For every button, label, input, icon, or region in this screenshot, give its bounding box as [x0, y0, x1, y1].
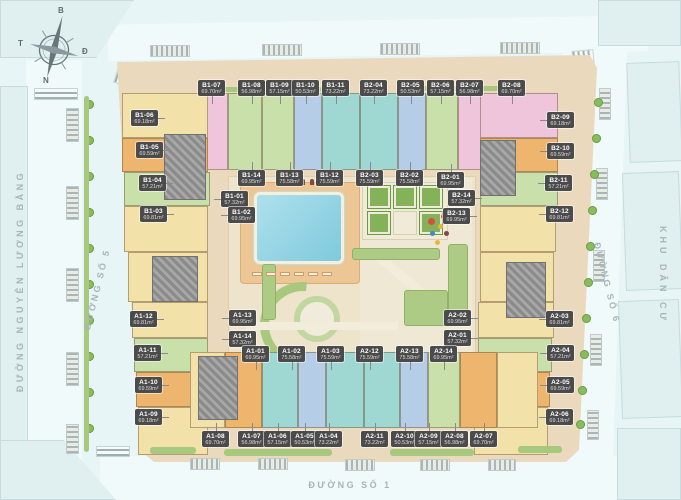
neighbor-parcel — [598, 0, 681, 46]
unit-label-a1-10[interactable]: A1-1069.59m² — [135, 377, 162, 393]
unit-id: B1-07 — [198, 82, 225, 89]
unit-label-b2-09[interactable]: B2-0969.18m² — [547, 112, 574, 128]
sidewalk-hatch — [66, 108, 79, 142]
unit-id: A2-09 — [415, 433, 442, 440]
hedge-strip — [390, 449, 474, 456]
unit-area: 69.18m² — [546, 418, 573, 424]
unit-area: 57.21m² — [134, 354, 161, 360]
sidewalk-hatch — [420, 459, 450, 471]
unit-area: 69.59m² — [547, 152, 574, 158]
unit-label-b2-10[interactable]: B2-1069.59m² — [547, 143, 574, 159]
bush — [592, 134, 601, 143]
unit-area: 73.22m² — [361, 440, 388, 446]
unit-id: B1-06 — [131, 112, 158, 119]
unit-id: A2-08 — [441, 433, 468, 440]
unit-id: B2-03 — [356, 172, 383, 179]
unit-label-b2-12[interactable]: B2-1269.81m² — [546, 206, 573, 222]
unit-label-a2-02[interactable]: A2-0269.95m² — [444, 310, 471, 326]
unit-id: B2-12 — [546, 208, 573, 215]
neighbor-parcel — [618, 299, 681, 419]
pool-lounger — [308, 272, 318, 276]
unit-id: A1-10 — [135, 379, 162, 386]
unit-area: 75.59m² — [316, 179, 343, 185]
unit-label-a2-12[interactable]: A2-1275.59m² — [356, 346, 383, 362]
unit-id: A2-01 — [444, 332, 471, 339]
unit-id: A1-09 — [135, 411, 162, 418]
unit-area: 75.59m² — [356, 355, 383, 361]
unit-label-b1-14[interactable]: B1-1469.95m² — [238, 170, 265, 186]
person-figure — [310, 179, 314, 185]
unit-area: 69.95m² — [228, 216, 255, 222]
unit-area: 57.21m² — [545, 184, 572, 190]
unit-area: 69.95m² — [242, 355, 269, 361]
unit-label-a2-04[interactable]: A2-0457.21m² — [547, 345, 574, 361]
sidewalk-hatch — [380, 43, 420, 55]
unit-id: B1-03 — [140, 208, 167, 215]
unit-label-b1-10[interactable]: B1-1050.53m² — [292, 80, 319, 96]
unit-id: A2-07 — [470, 433, 497, 440]
unit-area: 69.70m² — [202, 440, 229, 446]
compass-rose: B Đ N T — [12, 6, 96, 90]
sidewalk-hatch — [66, 268, 79, 302]
unit-label-a2-06[interactable]: A2-0669.18m² — [546, 409, 573, 425]
unit-id: B1-11 — [322, 82, 349, 89]
unit-id: A2-11 — [361, 433, 388, 440]
unit-id: B1-14 — [238, 172, 265, 179]
unit-label-a2-05[interactable]: A2-0569.59m² — [547, 377, 574, 393]
unit-label-a1-12[interactable]: A1-1269.81m² — [130, 311, 157, 327]
street-label-nguyen-luong-bang: ĐƯỜNG NGUYỄN LƯƠNG BẰNG — [15, 131, 25, 431]
unit-label-a2-13[interactable]: A2-1375.58m² — [396, 346, 423, 362]
sidewalk-hatch — [150, 45, 190, 57]
unit-area: 69.81m² — [546, 320, 573, 326]
unit-id: B2-08 — [498, 82, 525, 89]
sidewalk-hatch — [66, 186, 79, 220]
unit-area: 69.59m² — [135, 386, 162, 392]
unit-area: 69.70m² — [470, 440, 497, 446]
unit-id: A1-11 — [134, 347, 161, 354]
unit-id: A2-12 — [356, 348, 383, 355]
unit-block — [262, 93, 294, 170]
unit-label-b2-02[interactable]: B2-0275.58m² — [396, 170, 423, 186]
unit-area: 56.98m² — [238, 440, 265, 446]
unit-id: A2-06 — [546, 411, 573, 418]
hedge-strip — [150, 447, 196, 454]
unit-label-a2-14[interactable]: A2-1469.95m² — [430, 346, 457, 362]
unit-area: 56.98m² — [238, 89, 265, 95]
unit-label-b1-02[interactable]: B1-0269.95m² — [228, 207, 255, 223]
unit-label-a1-08[interactable]: A1-0869.70m² — [202, 431, 229, 447]
hedge-strip — [224, 449, 332, 456]
unit-label-b2-04[interactable]: B2-0473.22m² — [360, 80, 387, 96]
unit-label-b1-07[interactable]: B1-0769.70m² — [198, 80, 225, 96]
unit-id: A1-05 — [291, 433, 318, 440]
unit-block — [294, 93, 322, 170]
unit-id: B2-10 — [547, 145, 574, 152]
unit-label-b1-08[interactable]: B1-0856.98m² — [238, 80, 265, 96]
unit-area: 69.18m² — [135, 418, 162, 424]
unit-id: B1-12 — [316, 172, 343, 179]
unit-area: 57.15m² — [427, 89, 454, 95]
unit-label-b1-11[interactable]: B1-1173.22m² — [322, 80, 349, 96]
sidewalk-hatch — [587, 410, 599, 440]
plaza-planter — [368, 186, 390, 208]
unit-block — [322, 93, 360, 170]
unit-id: A2-13 — [396, 348, 423, 355]
unit-id: B2-07 — [456, 82, 483, 89]
unit-block — [228, 93, 262, 170]
unit-id: B1-04 — [139, 177, 166, 184]
unit-label-b1-04[interactable]: B1-0457.21m² — [139, 175, 166, 191]
unit-area: 73.22m² — [315, 440, 342, 446]
playground-item — [430, 231, 435, 236]
unit-label-a2-03[interactable]: A2-0369.81m² — [546, 311, 573, 327]
unit-label-a1-13[interactable]: A1-1369.95m² — [229, 310, 256, 326]
unit-label-b2-06[interactable]: B2-0657.15m² — [427, 80, 454, 96]
plaza-planter — [420, 186, 442, 208]
unit-block — [497, 352, 538, 428]
sidewalk-hatch — [500, 42, 540, 54]
unit-id: A1-01 — [242, 348, 269, 355]
service-core-block — [164, 134, 206, 200]
unit-label-b1-01[interactable]: B1-0157.32m² — [221, 191, 248, 207]
district-label-khu-dan-cu: KHU DÂN CƯ — [658, 220, 668, 330]
unit-area: 57.32m² — [444, 339, 471, 345]
unit-area: 69.95m² — [430, 355, 457, 361]
unit-area: 75.59m² — [317, 355, 344, 361]
unit-id: B1-09 — [266, 82, 293, 89]
hedge-strip — [518, 446, 562, 453]
unit-area: 69.81m² — [546, 215, 573, 221]
unit-area: 50.53m² — [397, 89, 424, 95]
unit-label-b1-03[interactable]: B1-0369.81m² — [140, 206, 167, 222]
neighbor-parcel — [626, 61, 681, 163]
unit-label-a1-06[interactable]: A1-0657.15m² — [264, 431, 291, 447]
unit-area: 73.22m² — [360, 89, 387, 95]
unit-id: B2-05 — [397, 82, 424, 89]
lawn-patch — [352, 248, 440, 260]
unit-id: A2-02 — [444, 312, 471, 319]
unit-block — [480, 206, 556, 252]
unit-label-b1-09[interactable]: B1-0957.15m² — [266, 80, 293, 96]
unit-id: B2-04 — [360, 82, 387, 89]
sidewalk-hatch — [262, 44, 302, 56]
unit-area: 73.22m² — [322, 89, 349, 95]
unit-area: 75.59m² — [356, 179, 383, 185]
unit-id: B2-09 — [547, 114, 574, 121]
bush — [582, 314, 591, 323]
unit-area: 57.21m² — [139, 184, 166, 190]
unit-label-b2-07[interactable]: B2-0756.98m² — [456, 80, 483, 96]
unit-label-b1-13[interactable]: B1-1375.58m² — [276, 170, 303, 186]
pool-lounger — [252, 272, 262, 276]
unit-area: 75.58m² — [396, 355, 423, 361]
unit-area: 57.32m² — [448, 199, 475, 205]
unit-block — [426, 93, 458, 170]
plaza-planter — [368, 212, 390, 234]
unit-label-a1-01[interactable]: A1-0169.95m² — [242, 346, 269, 362]
bush — [584, 278, 593, 287]
unit-id: B1-05 — [136, 144, 163, 151]
unit-label-a1-07[interactable]: A1-0756.98m² — [238, 431, 265, 447]
unit-label-a2-01[interactable]: A2-0157.32m² — [444, 330, 471, 346]
unit-area: 69.18m² — [131, 119, 158, 125]
bush — [576, 420, 585, 429]
unit-label-b2-11[interactable]: B2-1157.21m² — [545, 175, 572, 191]
unit-block — [398, 93, 426, 170]
unit-id: A1-07 — [238, 433, 265, 440]
unit-label-b1-12[interactable]: B1-1275.59m² — [316, 170, 343, 186]
unit-id: A2-03 — [546, 313, 573, 320]
unit-label-a1-14[interactable]: A1-1457.32m² — [229, 331, 256, 347]
compass-east-label: Đ — [82, 47, 88, 56]
sidewalk-hatch — [488, 459, 516, 471]
unit-id: B1-08 — [238, 82, 265, 89]
unit-label-a1-02[interactable]: A1-0275.58m² — [278, 346, 305, 362]
unit-block — [298, 352, 326, 428]
playground-item — [428, 218, 435, 225]
compass-north-label: B — [58, 6, 64, 15]
unit-block — [262, 352, 298, 428]
pool-lounger — [266, 272, 276, 276]
compass-south-label: N — [43, 76, 49, 85]
hedge-strip — [84, 96, 89, 452]
unit-area: 69.59m² — [136, 151, 163, 157]
master-plan-canvas: B1-0769.70m²B1-0856.98m²B1-0957.15m²B1-1… — [0, 0, 681, 500]
unit-id: A1-14 — [229, 333, 256, 340]
unit-id: B2-06 — [427, 82, 454, 89]
unit-label-a1-03[interactable]: A1-0375.59m² — [317, 346, 344, 362]
unit-id: A2-14 — [430, 348, 457, 355]
lawn-patch — [404, 290, 448, 326]
unit-area: 57.15m² — [415, 440, 442, 446]
unit-area: 69.81m² — [130, 320, 157, 326]
street-label-duong-so-1: ĐƯỜNG SỐ 1 — [270, 480, 430, 490]
sidewalk-hatch — [66, 424, 79, 454]
unit-block — [400, 352, 428, 428]
unit-id: B2-11 — [545, 177, 572, 184]
unit-label-a2-10[interactable]: A2-1050.53m² — [391, 431, 418, 447]
unit-label-a1-05[interactable]: A1-0550.53m² — [291, 431, 318, 447]
unit-block — [326, 352, 364, 428]
unit-label-b2-08[interactable]: B2-0869.70m² — [498, 80, 525, 96]
unit-id: A2-10 — [391, 433, 418, 440]
unit-id: B1-01 — [221, 193, 248, 200]
swimming-pool — [254, 192, 344, 264]
bush — [594, 98, 603, 107]
sidewalk-hatch — [258, 458, 288, 470]
plaza-paved-square — [394, 212, 416, 234]
garden-fountain-circle — [294, 296, 340, 342]
unit-id: A1-08 — [202, 433, 229, 440]
unit-area: 69.95m² — [238, 179, 265, 185]
sidewalk-hatch — [190, 458, 220, 470]
unit-label-a2-11[interactable]: A2-1173.22m² — [361, 431, 388, 447]
unit-label-b2-01[interactable]: B2-0169.95m² — [437, 172, 464, 188]
service-core-block — [506, 262, 546, 318]
unit-id: A1-13 — [229, 312, 256, 319]
unit-label-b2-05[interactable]: B2-0550.53m² — [397, 80, 424, 96]
unit-label-b1-05[interactable]: B1-0569.59m² — [136, 142, 163, 158]
unit-label-a2-07[interactable]: A2-0769.70m² — [470, 431, 497, 447]
sidewalk-hatch — [590, 334, 602, 366]
unit-label-b1-06[interactable]: B1-0669.18m² — [131, 110, 158, 126]
unit-area: 57.21m² — [547, 354, 574, 360]
plaza-planter — [394, 186, 416, 208]
unit-id: A2-04 — [547, 347, 574, 354]
service-core-block — [198, 356, 238, 420]
unit-id: A1-12 — [130, 313, 157, 320]
unit-area: 69.18m² — [547, 121, 574, 127]
unit-block — [460, 352, 497, 428]
service-core-block — [480, 140, 516, 196]
unit-id: B1-02 — [228, 209, 255, 216]
unit-area: 50.53m² — [391, 440, 418, 446]
sidewalk-hatch — [345, 459, 375, 471]
unit-label-a2-08[interactable]: A2-0856.98m² — [441, 431, 468, 447]
unit-area: 69.95m² — [444, 319, 471, 325]
unit-id: A1-04 — [315, 433, 342, 440]
pool-lounger — [280, 272, 290, 276]
bush — [580, 350, 589, 359]
neighbor-parcel — [622, 171, 681, 291]
unit-block — [360, 93, 398, 170]
unit-id: A1-02 — [278, 348, 305, 355]
unit-area: 75.58m² — [278, 355, 305, 361]
sidewalk-hatch — [66, 352, 79, 386]
playground-item — [444, 231, 449, 236]
unit-label-a2-09[interactable]: A2-0957.15m² — [415, 431, 442, 447]
bush — [590, 170, 599, 179]
unit-id: B2-02 — [396, 172, 423, 179]
unit-id: B1-13 — [276, 172, 303, 179]
unit-id: A1-03 — [317, 348, 344, 355]
unit-id: B2-14 — [448, 192, 475, 199]
crosswalk — [96, 446, 130, 457]
unit-area: 69.95m² — [437, 181, 464, 187]
pool-lounger — [294, 272, 304, 276]
playground-item — [435, 240, 440, 245]
unit-area: 69.70m² — [198, 89, 225, 95]
unit-area: 69.95m² — [443, 217, 470, 223]
unit-area: 57.15m² — [264, 440, 291, 446]
unit-id: B2-13 — [443, 210, 470, 217]
unit-area: 56.98m² — [441, 440, 468, 446]
unit-area: 56.98m² — [456, 89, 483, 95]
unit-area: 69.70m² — [498, 89, 525, 95]
unit-area: 69.59m² — [547, 386, 574, 392]
unit-label-a1-09[interactable]: A1-0969.18m² — [135, 409, 162, 425]
playground-item — [438, 224, 443, 229]
unit-label-a1-04[interactable]: A1-0473.22m² — [315, 431, 342, 447]
bush — [588, 206, 597, 215]
unit-id: A1-06 — [264, 433, 291, 440]
unit-area: 57.15m² — [266, 89, 293, 95]
walking-path — [246, 322, 398, 330]
unit-area: 57.32m² — [221, 200, 248, 206]
compass-west-label: T — [18, 39, 23, 48]
unit-area: 75.58m² — [396, 179, 423, 185]
unit-area: 69.81m² — [140, 215, 167, 221]
pool-lounger — [322, 272, 332, 276]
unit-area: 75.58m² — [276, 179, 303, 185]
unit-area: 69.95m² — [229, 319, 256, 325]
unit-label-b2-13[interactable]: B2-1369.95m² — [443, 208, 470, 224]
unit-label-b2-03[interactable]: B2-0375.59m² — [356, 170, 383, 186]
unit-area: 50.53m² — [291, 440, 318, 446]
unit-id: B1-10 — [292, 82, 319, 89]
unit-id: A2-05 — [547, 379, 574, 386]
unit-id: B2-01 — [437, 174, 464, 181]
service-core-block — [152, 256, 198, 302]
unit-area: 50.53m² — [292, 89, 319, 95]
unit-label-b2-14[interactable]: B2-1457.32m² — [448, 190, 475, 206]
bush — [578, 386, 587, 395]
neighbor-parcel — [617, 428, 681, 500]
unit-label-a1-11[interactable]: A1-1157.21m² — [134, 345, 161, 361]
